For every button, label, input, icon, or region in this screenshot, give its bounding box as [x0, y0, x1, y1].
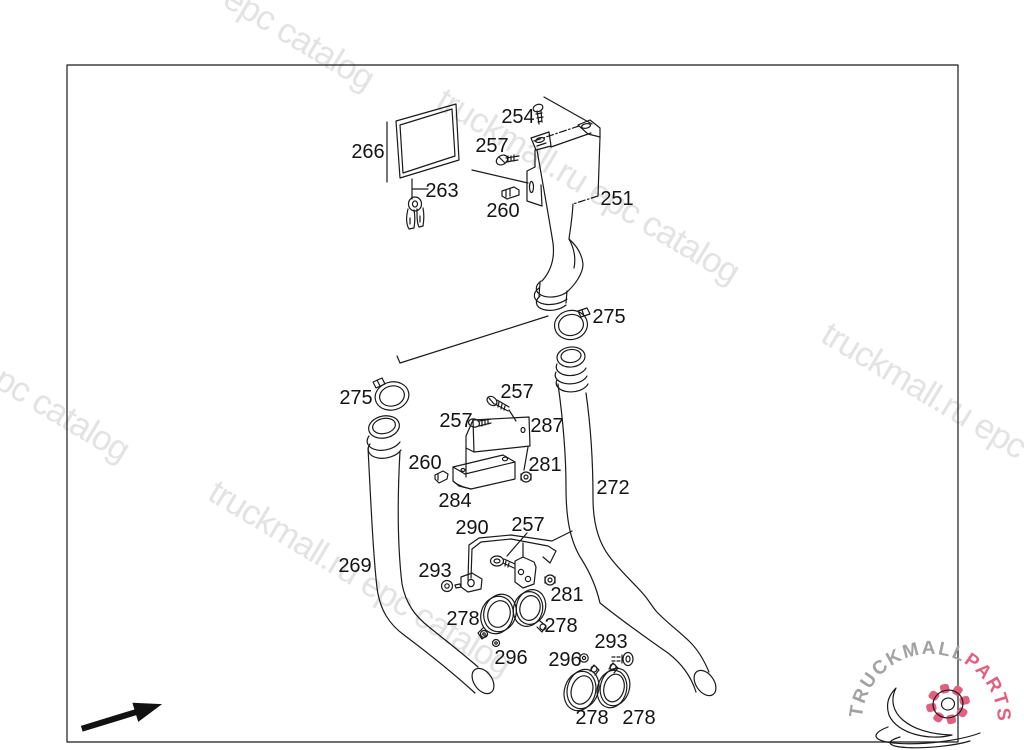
leader-junction: [397, 316, 548, 363]
truckmall-logo: TRUCKMALLPARTS: [846, 638, 1014, 748]
part-label-254[interactable]: 254: [501, 106, 534, 128]
part-label-278[interactable]: 278: [622, 707, 655, 729]
part-275-clamp-left: [372, 378, 412, 414]
part-label-257[interactable]: 257: [500, 381, 533, 403]
direction-arrow: [79, 695, 165, 739]
part-272-hose: [555, 346, 720, 700]
part-label-284[interactable]: 284: [438, 490, 471, 512]
part-257-screw-low: [491, 556, 516, 568]
part-293-bolt-right: [612, 653, 633, 666]
part-label-257[interactable]: 257: [475, 135, 508, 157]
logo-brand-text: TRUCKMALL: [846, 638, 970, 719]
logo-suffix-text: PARTS: [961, 649, 1015, 723]
part-287-bracket-plate: [466, 417, 530, 477]
logo-gear: [922, 680, 973, 729]
part-label-269[interactable]: 269: [338, 555, 371, 577]
part-260-clip-top: [502, 187, 519, 199]
part-label-272[interactable]: 272: [596, 477, 629, 499]
part-label-278[interactable]: 278: [575, 707, 608, 729]
epc-catalog-page: { "diagram": { "type": "exploded-parts-d…: [0, 0, 1024, 750]
part-label-260[interactable]: 260: [408, 452, 441, 474]
part-254-screw: [532, 97, 592, 124]
leader-257-top: [472, 170, 528, 183]
part-257-screw-top: [472, 153, 528, 183]
part-251-bracket: [527, 120, 600, 310]
parts-diagram: 2542572662632602512752752572572872602812…: [0, 0, 1024, 750]
part-label-251[interactable]: 251: [600, 188, 633, 210]
part-label-275[interactable]: 275: [339, 387, 372, 409]
part-label-296[interactable]: 296: [494, 647, 527, 669]
part-label-287[interactable]: 287: [530, 415, 563, 437]
part-293-washer-left: [442, 581, 462, 592]
part-label-260[interactable]: 260: [486, 200, 519, 222]
part-labels: 2542572662632602512752752572572872602812…: [338, 106, 655, 729]
part-label-257[interactable]: 257: [511, 514, 544, 536]
part-label-293[interactable]: 293: [594, 631, 627, 653]
part-284-bracket: [453, 455, 515, 489]
part-label-281[interactable]: 281: [528, 454, 561, 476]
part-label-263[interactable]: 263: [425, 180, 458, 202]
part-275-clamp-right: [552, 308, 590, 342]
part-label-275[interactable]: 275: [592, 306, 625, 328]
diagram-border: [67, 65, 958, 742]
part-label-296[interactable]: 296: [548, 649, 581, 671]
part-label-290[interactable]: 290: [455, 517, 488, 539]
part-263-clip: [407, 197, 424, 229]
part-label-281[interactable]: 281: [550, 584, 583, 606]
part-label-278[interactable]: 278: [544, 615, 577, 637]
part-label-293[interactable]: 293: [418, 560, 451, 582]
leader-257-mid: [509, 410, 516, 421]
part-label-278[interactable]: 278: [446, 608, 479, 630]
part-label-266[interactable]: 266: [351, 141, 384, 163]
part-label-257[interactable]: 257: [439, 410, 472, 432]
leader-254: [544, 97, 592, 124]
